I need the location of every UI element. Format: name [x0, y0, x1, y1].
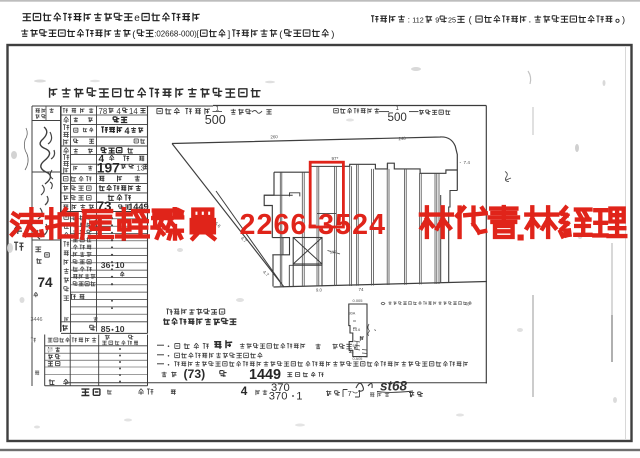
svg-text:197: 197 [97, 160, 120, 175]
svg-text:74: 74 [38, 275, 54, 290]
svg-text:): ) [331, 29, 334, 40]
svg-text:9.0: 9.0 [316, 288, 322, 293]
svg-text:1: 1 [296, 391, 302, 403]
svg-text:10: 10 [115, 260, 125, 270]
svg-text:(: ( [469, 14, 472, 24]
svg-text::02668-000)[: :02668-000)[ [154, 30, 200, 39]
svg-text:500: 500 [205, 113, 226, 127]
svg-text:14.6: 14.6 [353, 328, 360, 332]
svg-text:390: 390 [330, 250, 337, 255]
svg-text:2266-3524: 2266-3524 [240, 209, 387, 241]
svg-text:0.005: 0.005 [353, 298, 364, 303]
svg-text:260: 260 [270, 134, 278, 139]
svg-text:370: 370 [269, 391, 288, 403]
svg-text:14: 14 [129, 107, 138, 116]
svg-text:e: e [134, 13, 140, 24]
svg-text:10: 10 [115, 324, 125, 334]
svg-text:7.4: 7.4 [464, 160, 471, 165]
svg-text:9: 9 [435, 16, 439, 25]
svg-text:4: 4 [125, 126, 130, 136]
svg-text:240: 240 [398, 136, 406, 141]
svg-text:30A: 30A [349, 312, 356, 316]
svg-text:7: 7 [348, 389, 352, 398]
svg-text:85: 85 [101, 324, 111, 334]
svg-text:25: 25 [448, 16, 456, 25]
svg-text:97*: 97* [332, 156, 339, 161]
svg-text:74: 74 [359, 287, 365, 292]
svg-text:st68: st68 [380, 378, 408, 393]
svg-text:0.A05: 0.A05 [353, 357, 363, 361]
svg-text:78: 78 [99, 107, 108, 116]
svg-text:112: 112 [412, 16, 423, 25]
svg-text:500: 500 [388, 111, 407, 124]
svg-text:4: 4 [241, 384, 248, 398]
svg-text:36: 36 [101, 260, 111, 270]
svg-text::: : [408, 14, 410, 24]
svg-text:(73): (73) [184, 367, 206, 381]
svg-text:4: 4 [117, 107, 122, 116]
svg-text:3446: 3446 [31, 317, 43, 323]
svg-text:,: , [529, 15, 531, 24]
svg-text:]: ] [228, 29, 231, 40]
svg-text:): ) [622, 14, 625, 24]
svg-text:1449: 1449 [249, 367, 281, 383]
